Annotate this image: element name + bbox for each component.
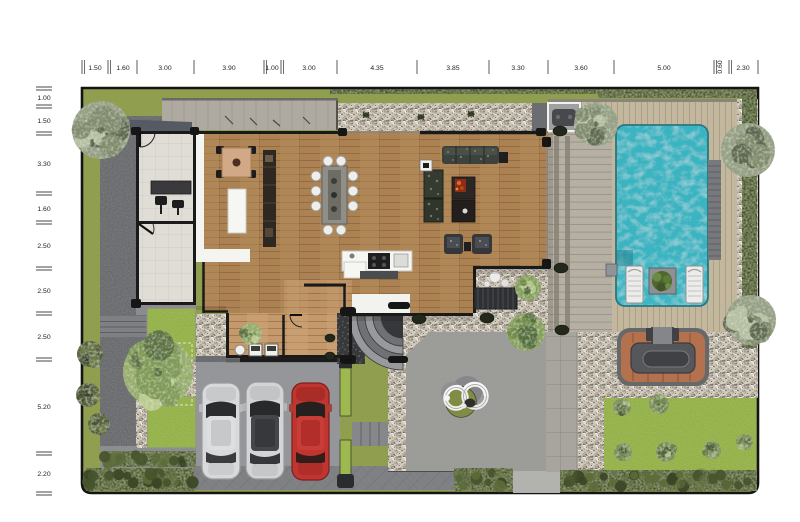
svg-text:3.90: 3.90 [222, 65, 235, 72]
svg-text:1.60: 1.60 [37, 206, 50, 213]
svg-text:1.00: 1.00 [37, 95, 50, 102]
svg-text:5.00: 5.00 [657, 65, 670, 72]
svg-text:2.50: 2.50 [37, 334, 50, 341]
svg-text:3.00: 3.00 [158, 65, 171, 72]
svg-text:1.50: 1.50 [88, 65, 101, 72]
svg-text:1.00: 1.00 [265, 65, 278, 72]
svg-text:3.00: 3.00 [302, 65, 315, 72]
svg-text:4.35: 4.35 [370, 65, 383, 72]
svg-text:0.60: 0.60 [717, 60, 724, 73]
svg-text:3.85: 3.85 [446, 65, 459, 72]
svg-text:1.50: 1.50 [37, 118, 50, 125]
svg-text:3.60: 3.60 [574, 65, 587, 72]
svg-text:5.20: 5.20 [37, 404, 50, 411]
svg-text:3.30: 3.30 [511, 65, 524, 72]
svg-text:2.50: 2.50 [37, 243, 50, 250]
svg-text:2.20: 2.20 [37, 471, 50, 478]
svg-text:2.50: 2.50 [37, 288, 50, 295]
svg-text:2.30: 2.30 [736, 65, 749, 72]
svg-text:1.60: 1.60 [116, 65, 129, 72]
svg-text:3.30: 3.30 [37, 161, 50, 168]
